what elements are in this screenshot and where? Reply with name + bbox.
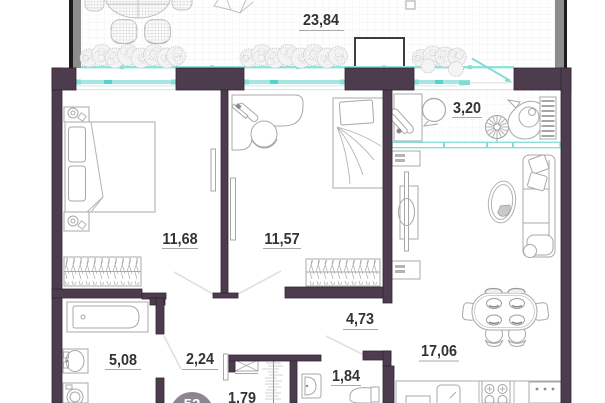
svg-text:3,20: 3,20 bbox=[453, 99, 481, 117]
svg-text:5,08: 5,08 bbox=[109, 351, 137, 369]
svg-text:11,57: 11,57 bbox=[264, 230, 299, 248]
svg-text:17,06: 17,06 bbox=[421, 342, 457, 360]
svg-text:1,84: 1,84 bbox=[332, 367, 361, 385]
svg-text:23,84: 23,84 bbox=[303, 11, 340, 29]
svg-text:11,68: 11,68 bbox=[162, 230, 197, 248]
svg-text:4,73: 4,73 bbox=[346, 310, 374, 328]
svg-text:52: 52 bbox=[184, 396, 201, 403]
svg-text:2,24: 2,24 bbox=[186, 350, 215, 368]
svg-text:1,79: 1,79 bbox=[228, 389, 256, 403]
